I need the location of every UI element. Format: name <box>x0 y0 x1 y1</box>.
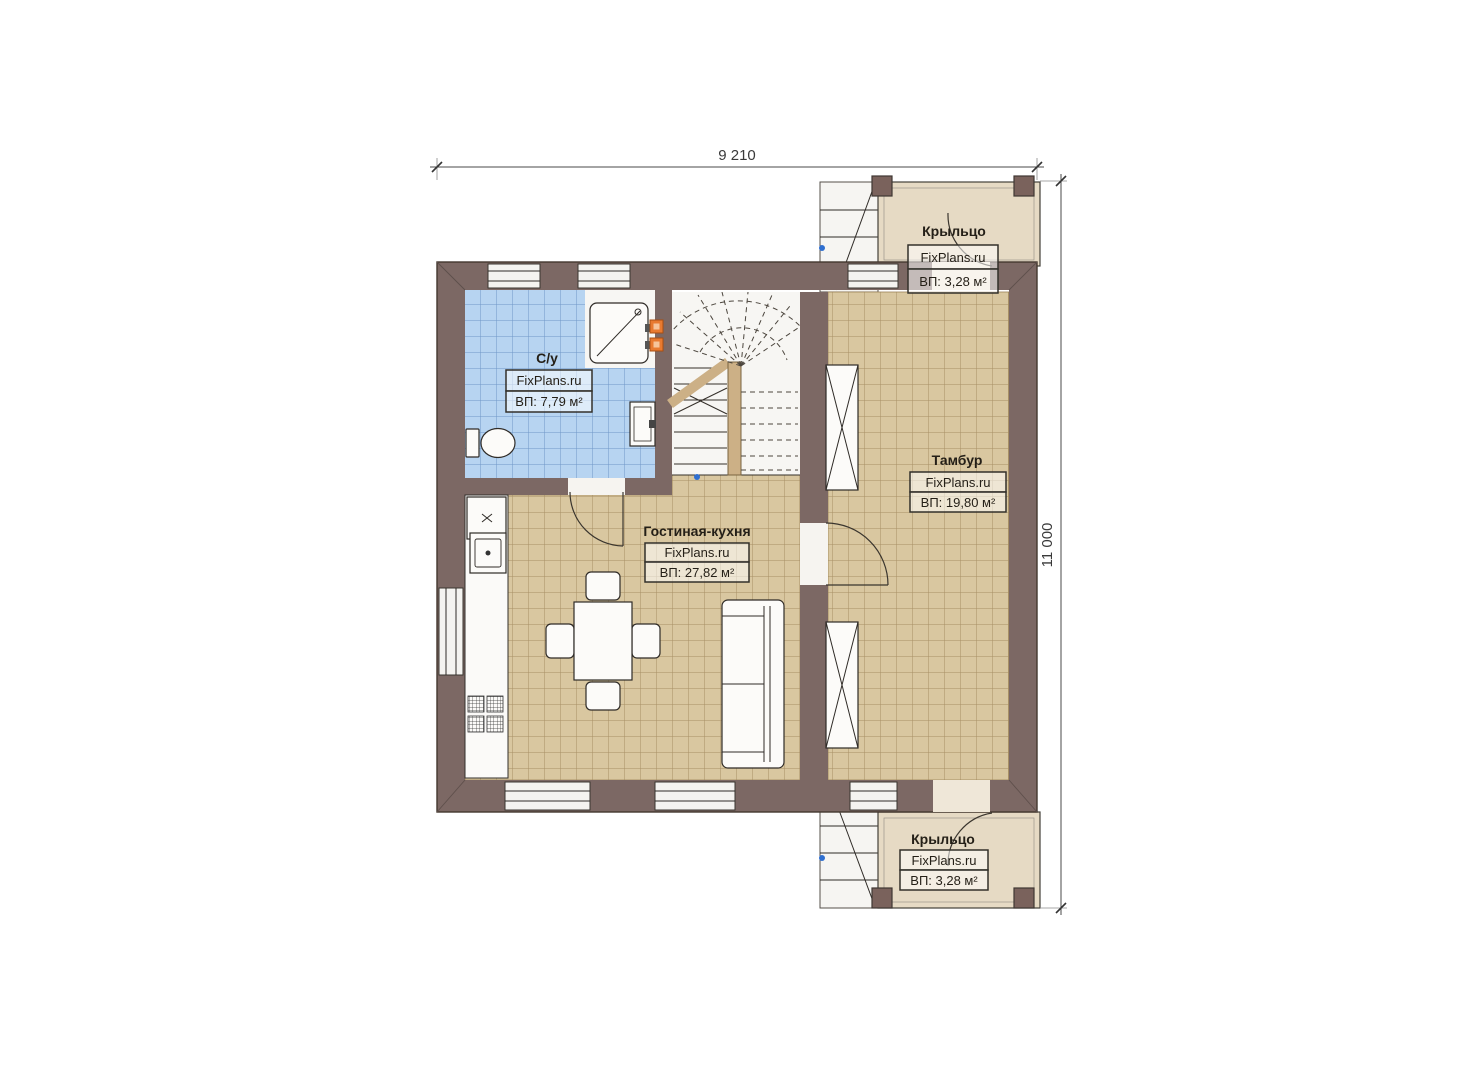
room-name: Крыльцо <box>922 223 986 239</box>
room-area: ВП: 19,80 м² <box>921 495 996 510</box>
chair <box>586 682 620 710</box>
porch-post-icon <box>1014 176 1034 196</box>
chair <box>632 624 660 658</box>
floor-plan-canvas: Крыльцо FixPlans.ru ВП: 3,28 м² С/у FixP… <box>0 0 1473 1080</box>
level-marker-icon <box>819 245 825 251</box>
toilet <box>466 429 515 458</box>
room-area: ВП: 3,28 м² <box>910 873 978 888</box>
sofa <box>722 600 784 768</box>
room-name: Гостиная-кухня <box>643 523 750 539</box>
window <box>848 264 898 288</box>
level-marker-icon <box>694 474 700 480</box>
watermark: FixPlans.ru <box>911 853 976 868</box>
room-label-living-kitchen: Гостиная-кухня FixPlans.ru ВП: 27,82 м² <box>643 523 750 582</box>
window <box>439 588 463 675</box>
room-name: С/у <box>536 350 558 366</box>
room-area: ВП: 27,82 м² <box>660 565 735 580</box>
vestibule-door-opening <box>800 523 828 585</box>
room-area: ВП: 7,79 м² <box>515 394 583 409</box>
table-top <box>574 602 632 680</box>
wardrobe <box>826 622 858 748</box>
window <box>578 264 630 288</box>
bathroom-door-opening <box>568 478 625 495</box>
porch-post-icon <box>872 888 892 908</box>
watermark: FixPlans.ru <box>516 373 581 388</box>
page: Крыльцо FixPlans.ru ВП: 3,28 м² С/у FixP… <box>0 0 1473 1080</box>
room-name: Тамбур <box>932 452 983 468</box>
watermark: FixPlans.ru <box>925 475 990 490</box>
dimension-right: 11 000 <box>1039 174 1067 915</box>
porch-post-icon <box>872 176 892 196</box>
level-marker-icon <box>819 855 825 861</box>
room-label-porch-top: Крыльцо FixPlans.ru ВП: 3,28 м² <box>908 223 998 293</box>
shower <box>590 303 653 363</box>
washbasin <box>630 402 656 446</box>
dimension-height-label: 11 000 <box>1039 523 1056 568</box>
watermark: FixPlans.ru <box>920 250 985 265</box>
dimension-width-label: 9 210 <box>718 147 756 164</box>
window <box>505 782 590 810</box>
room-area: ВП: 3,28 м² <box>919 274 987 289</box>
entry-steps-bottom <box>819 800 878 908</box>
room-label-porch-bottom: Крыльцо FixPlans.ru ВП: 3,28 м² <box>900 831 988 890</box>
window <box>488 264 540 288</box>
window <box>655 782 735 810</box>
kitchen-sink <box>470 533 506 573</box>
porch-post-icon <box>1014 888 1034 908</box>
room-name: Крыльцо <box>911 831 975 847</box>
window <box>850 782 897 810</box>
chair <box>546 624 574 658</box>
chair <box>586 572 620 600</box>
wall-bathroom-east <box>655 290 672 478</box>
entry-door-opening-bottom <box>933 780 990 812</box>
wall-left <box>437 290 465 780</box>
wall-right <box>1009 290 1037 780</box>
stair-newel <box>728 362 741 475</box>
dimension-top: 9 210 <box>430 147 1044 180</box>
wardrobe <box>826 365 858 490</box>
watermark: FixPlans.ru <box>664 545 729 560</box>
